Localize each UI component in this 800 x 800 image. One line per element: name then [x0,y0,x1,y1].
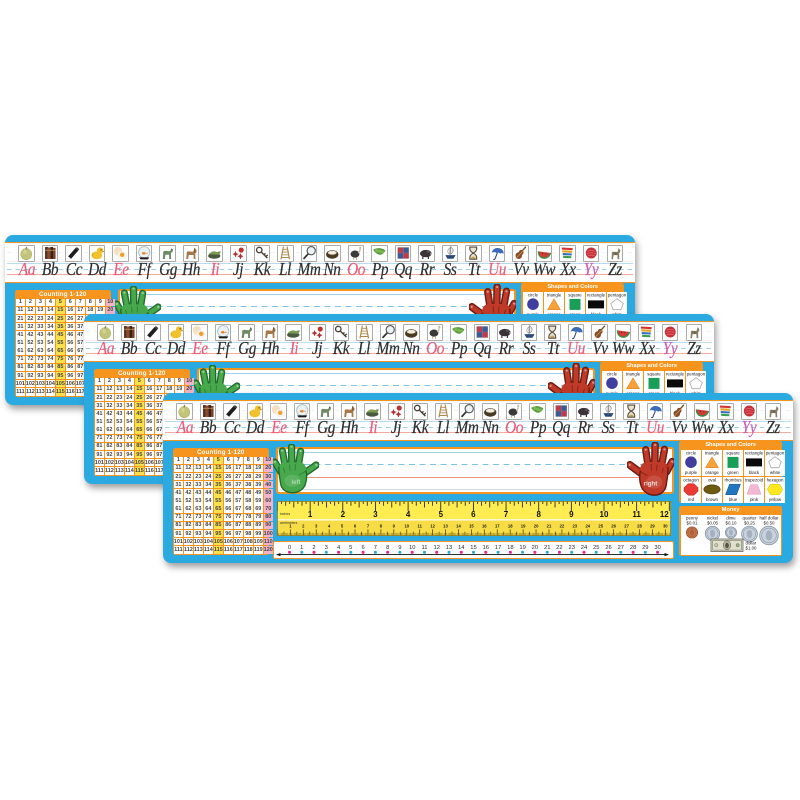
svg-text:13: 13 [446,545,452,551]
svg-text:27: 27 [618,545,624,551]
svg-text:29: 29 [642,545,648,551]
svg-text:11: 11 [632,509,641,518]
svg-text:22: 22 [559,523,564,528]
svg-text:$0.25: $0.25 [744,520,756,525]
svg-text:17: 17 [495,523,500,528]
svg-text:triangle: triangle [546,293,561,298]
svg-text:oval: oval [707,478,715,483]
svg-text:10: 10 [409,545,415,551]
svg-text:2: 2 [340,509,345,518]
svg-text:18: 18 [507,523,512,528]
svg-text:trapezoid: trapezoid [744,478,763,483]
svg-text:$0.50: $0.50 [763,520,775,525]
svg-text:20: 20 [533,523,538,528]
svg-text:inches: inches [279,512,290,516]
svg-text:12: 12 [659,509,668,518]
svg-text:square: square [568,293,582,298]
svg-text:pentagon: pentagon [607,293,626,298]
svg-text:30: 30 [655,545,661,551]
svg-text:brown: brown [706,497,719,502]
svg-text:19: 19 [520,545,526,551]
svg-text:pentagon: pentagon [765,451,784,456]
svg-text:10: 10 [404,523,409,528]
svg-text:5: 5 [349,545,352,551]
svg-text:triangle: triangle [625,372,640,377]
svg-text:rectangle: rectangle [744,451,763,456]
svg-text:25: 25 [598,523,603,528]
svg-text:26: 26 [605,545,611,551]
svg-text:19: 19 [520,523,525,528]
svg-text:8: 8 [386,545,389,551]
svg-text:orange: orange [705,470,719,475]
svg-text:right: right [644,480,658,487]
svg-text:15: 15 [470,545,476,551]
svg-text:11: 11 [422,545,428,551]
svg-text:blue: blue [728,497,737,502]
svg-text:0: 0 [288,545,291,551]
svg-text:7: 7 [503,509,508,518]
svg-text:14: 14 [456,523,461,528]
svg-text:8: 8 [536,509,541,518]
svg-text:5: 5 [438,509,443,518]
svg-text:3: 3 [325,545,328,551]
svg-text:17: 17 [495,545,501,551]
svg-text:4: 4 [337,545,341,551]
svg-text:pentagon: pentagon [686,372,705,377]
svg-text:$1.00: $1.00 [745,545,757,550]
svg-text:black: black [748,470,759,475]
svg-text:2: 2 [313,545,316,551]
svg-text:$0.01: $0.01 [686,520,698,525]
svg-text:6: 6 [362,545,365,551]
svg-text:21: 21 [546,523,551,528]
svg-text:23: 23 [569,545,575,551]
svg-text:10: 10 [599,509,608,518]
svg-text:purple: purple [684,470,697,475]
svg-text:20: 20 [532,545,538,551]
svg-text:4: 4 [405,509,410,518]
svg-text:rectangle: rectangle [586,293,605,298]
svg-text:green: green [727,470,739,475]
svg-text:circle: circle [685,451,696,456]
svg-text:30: 30 [663,523,668,528]
svg-text:18: 18 [507,545,513,551]
svg-text:12: 12 [430,523,435,528]
svg-text:1: 1 [307,509,312,518]
svg-text:white: white [769,470,780,475]
svg-text:13: 13 [443,523,448,528]
svg-text:21: 21 [544,545,550,551]
svg-text:square: square [647,372,661,377]
svg-text:26: 26 [611,523,616,528]
svg-text:22: 22 [556,545,562,551]
svg-text:7: 7 [374,545,377,551]
svg-text:1: 1 [300,545,303,551]
svg-text:11: 11 [417,523,422,528]
svg-text:rhombus: rhombus [724,478,742,483]
svg-text:left: left [292,480,301,486]
svg-text:octagon: octagon [683,478,699,483]
svg-text:25: 25 [593,545,599,551]
svg-text:9: 9 [569,509,574,518]
svg-text:15: 15 [469,523,474,528]
svg-text:6: 6 [471,509,476,518]
svg-text:14: 14 [458,545,465,551]
svg-text:rectangle: rectangle [665,372,684,377]
svg-text:3: 3 [373,509,378,518]
svg-text:16: 16 [483,545,489,551]
svg-text:red: red [687,497,694,502]
svg-text:16: 16 [482,523,487,528]
svg-text:9: 9 [398,545,401,551]
svg-text:24: 24 [585,523,590,528]
svg-text:circle: circle [527,293,538,298]
svg-text:pink: pink [749,497,758,502]
svg-text:23: 23 [572,523,577,528]
svg-text:29: 29 [650,523,655,528]
svg-text:28: 28 [637,523,642,528]
svg-text:$0.10: $0.10 [725,520,737,525]
svg-text:circle: circle [606,372,617,377]
svg-text:24: 24 [581,545,588,551]
svg-text:square: square [726,451,740,456]
svg-text:28: 28 [630,545,636,551]
svg-text:hexagon: hexagon [766,478,783,483]
svg-text:yellow: yellow [768,497,781,502]
svg-text:12: 12 [434,545,440,551]
svg-text:triangle: triangle [704,451,719,456]
svg-text:$0.05: $0.05 [707,520,719,525]
svg-text:27: 27 [624,523,629,528]
